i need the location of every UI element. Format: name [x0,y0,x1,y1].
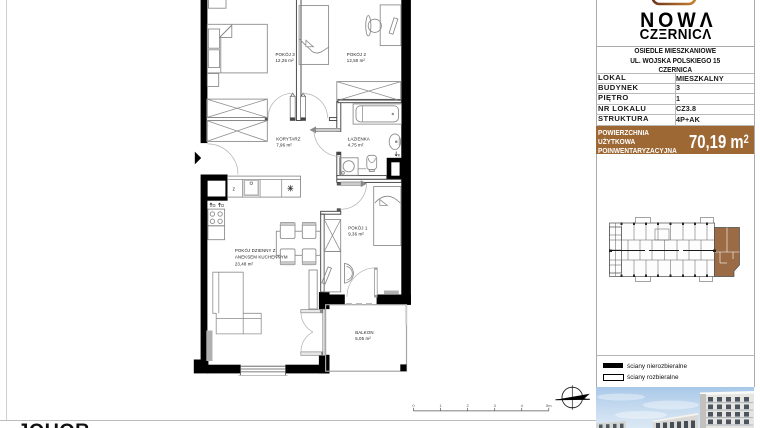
svg-text:12,26 m²: 12,26 m² [276,58,295,63]
svg-text:ŁAZIENKA: ŁAZIENKA [348,137,370,142]
svg-text:3: 3 [494,403,497,408]
svg-text:POKÓJ 1: POKÓJ 1 [348,226,368,231]
svg-text:1: 1 [439,403,442,408]
svg-text:12,50 m²: 12,50 m² [347,58,366,63]
svg-text:KORYTARZ: KORYTARZ [276,137,301,142]
svg-text:4,75 m²: 4,75 m² [348,143,364,148]
svg-text:K: K [398,153,401,158]
svg-text:POKÓJ 3: POKÓJ 3 [276,52,296,57]
svg-text:5,05 m²: 5,05 m² [355,336,371,341]
svg-text:POKÓJ DZIENNY Z: POKÓJ DZIENNY Z [235,248,276,253]
svg-text:POKÓJ 2: POKÓJ 2 [347,52,367,57]
svg-text:2: 2 [466,403,469,408]
svg-text:z: z [233,187,236,193]
svg-text:5m: 5m [546,403,552,408]
svg-text:7,96 m²: 7,96 m² [276,143,292,148]
svg-text:4: 4 [521,403,524,408]
svg-text:0: 0 [412,403,415,408]
svg-text:23,48 m²: 23,48 m² [235,261,254,266]
svg-text:BALKON: BALKON [355,330,373,335]
svg-text:ANEKSEM KUCHENNYM: ANEKSEM KUCHENNYM [235,255,288,260]
svg-text:9,36 m²: 9,36 m² [348,232,364,237]
